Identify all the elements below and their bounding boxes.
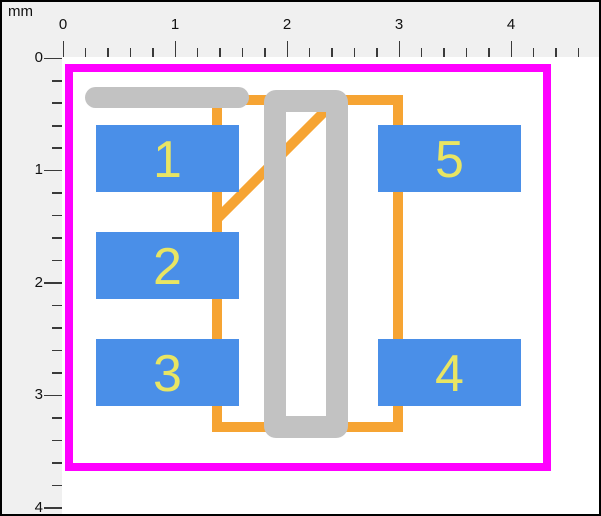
ruler-tick <box>52 327 62 329</box>
ruler-number: 4 <box>507 16 515 33</box>
ruler-tick <box>52 350 62 352</box>
ruler-number: 3 <box>9 386 43 403</box>
ruler-tick <box>219 48 221 57</box>
ruler-tick <box>52 125 62 127</box>
ruler-tick <box>44 58 62 60</box>
pad-3[interactable]: 3 <box>96 339 239 406</box>
ruler-tick <box>52 372 62 374</box>
ruler-number: 2 <box>9 274 43 291</box>
ruler-tick <box>511 41 513 57</box>
footprint-viewer-window: mm 1 2 3 4 5 0123401234 <box>0 0 601 516</box>
pad-2[interactable]: 2 <box>96 232 239 299</box>
ruler-tick <box>130 48 132 57</box>
ruler-tick <box>44 395 62 397</box>
ruler-tick <box>533 48 535 57</box>
ruler-tick <box>44 507 62 509</box>
pad-5-number: 5 <box>435 134 464 186</box>
pad-1-number: 1 <box>153 134 182 186</box>
ruler-number: 2 <box>283 16 291 33</box>
ruler-tick <box>399 41 401 57</box>
ruler-number: 4 <box>9 499 43 516</box>
ruler-number: 1 <box>9 162 43 179</box>
pad-3-number: 3 <box>153 348 182 400</box>
ruler-tick <box>152 48 154 57</box>
pad-2-number: 2 <box>153 241 182 293</box>
silkscreen-bar <box>85 87 249 108</box>
ruler-tick <box>354 48 356 57</box>
ruler-tick <box>376 48 378 57</box>
ruler-tick <box>331 48 333 57</box>
pad-4-number: 4 <box>435 348 464 400</box>
ruler-number: 1 <box>171 16 179 33</box>
ruler-tick <box>52 417 62 419</box>
ruler-tick <box>85 48 87 57</box>
ruler-tick <box>309 48 311 57</box>
ruler-tick <box>287 41 289 57</box>
ruler-tick <box>242 48 244 57</box>
ruler-tick <box>52 485 62 487</box>
pad-5[interactable]: 5 <box>378 125 521 192</box>
ruler-tick <box>421 48 423 57</box>
ruler-tick <box>52 237 62 239</box>
pad-1[interactable]: 1 <box>96 125 239 192</box>
ruler-tick <box>175 41 177 57</box>
left-ruler <box>2 2 62 514</box>
ruler-tick <box>52 260 62 262</box>
ruler-tick <box>52 192 62 194</box>
ruler-tick <box>44 170 62 172</box>
pad-4[interactable]: 4 <box>378 339 521 406</box>
ruler-unit-label: mm <box>8 3 33 20</box>
ruler-number: 0 <box>9 49 43 66</box>
ruler-tick <box>555 48 557 57</box>
ruler-tick <box>578 48 580 57</box>
ruler-tick <box>488 48 490 57</box>
silkscreen-ring <box>264 90 348 438</box>
ruler-tick <box>52 80 62 82</box>
ruler-number: 0 <box>59 16 67 33</box>
ruler-tick <box>443 48 445 57</box>
ruler-tick <box>63 41 65 57</box>
ruler-tick <box>52 462 62 464</box>
ruler-tick <box>264 48 266 57</box>
ruler-tick <box>52 102 62 104</box>
ruler-tick <box>52 215 62 217</box>
ruler-tick <box>44 282 62 284</box>
ruler-tick <box>466 48 468 57</box>
ruler-tick <box>52 440 62 442</box>
ruler-number: 3 <box>395 16 403 33</box>
ruler-tick <box>52 305 62 307</box>
ruler-tick <box>197 48 199 57</box>
ruler-tick <box>107 48 109 57</box>
ruler-tick <box>52 147 62 149</box>
